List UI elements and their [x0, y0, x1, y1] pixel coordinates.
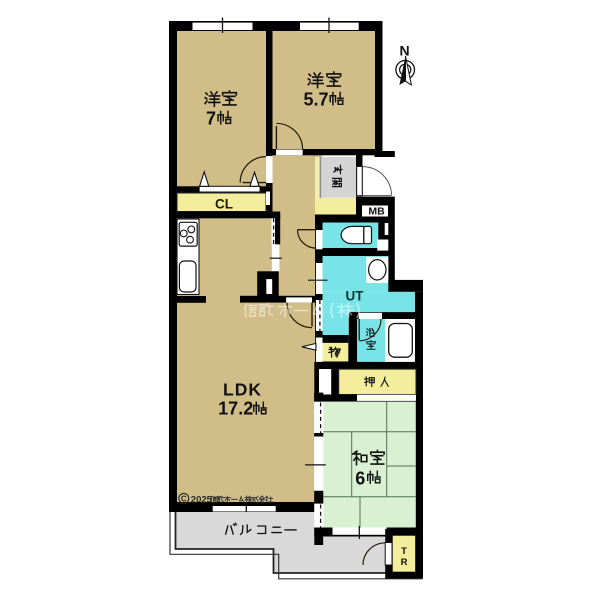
svg-text:UT: UT — [346, 288, 365, 303]
svg-text:C: C — [181, 494, 187, 503]
svg-text:N: N — [399, 43, 409, 59]
svg-text:2025: 2025 — [191, 495, 213, 506]
svg-text:MB: MB — [368, 206, 385, 218]
svg-text:6: 6 — [355, 469, 365, 489]
svg-text:LDK: LDK — [223, 380, 262, 400]
svg-text:5.7: 5.7 — [303, 89, 328, 109]
svg-text:CL: CL — [215, 197, 233, 212]
svg-text:7: 7 — [206, 109, 216, 129]
svg-text:T: T — [401, 546, 407, 557]
svg-text:17.2: 17.2 — [218, 399, 253, 419]
svg-text:R: R — [401, 557, 408, 568]
